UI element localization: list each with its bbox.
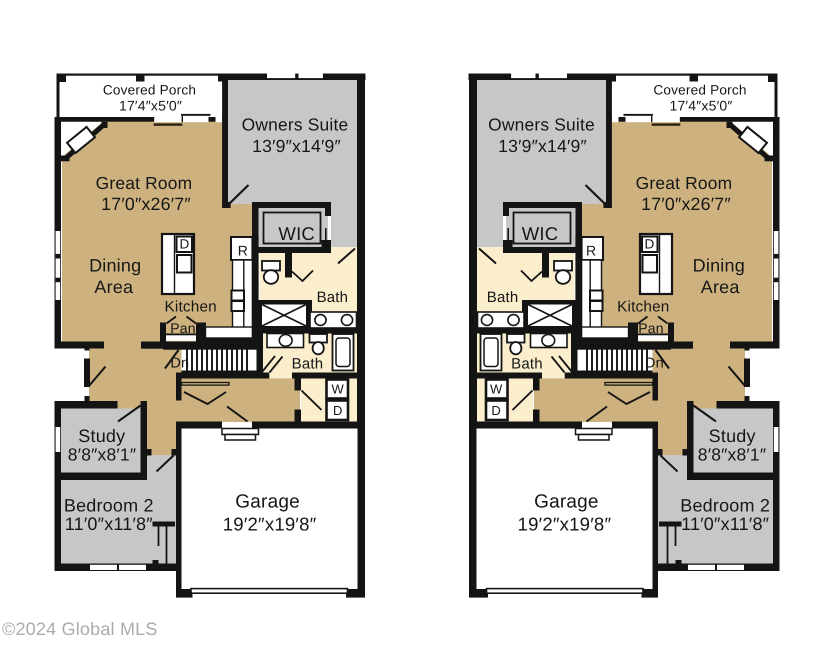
svg-text:Dn: Dn <box>170 355 189 371</box>
svg-text:Area: Area <box>701 277 741 297</box>
svg-text:11′0″x11′8″: 11′0″x11′8″ <box>681 514 770 534</box>
svg-text:19′2″x19′8″: 19′2″x19′8″ <box>223 513 317 534</box>
svg-text:19′2″x19′8″: 19′2″x19′8″ <box>518 513 612 534</box>
svg-text:R: R <box>586 243 596 259</box>
svg-text:Bedroom 2: Bedroom 2 <box>680 495 770 515</box>
svg-text:W: W <box>332 382 345 397</box>
svg-text:Dn: Dn <box>645 355 664 371</box>
svg-text:Covered Porch: Covered Porch <box>103 82 196 97</box>
svg-text:©2024 Global MLS: ©2024 Global MLS <box>2 619 158 639</box>
svg-text:17′0″x26′7″: 17′0″x26′7″ <box>641 194 731 214</box>
svg-text:WIC: WIC <box>522 223 559 244</box>
svg-text:D: D <box>180 237 190 252</box>
svg-text:WIC: WIC <box>278 223 315 244</box>
svg-text:13′9″x14′9″: 13′9″x14′9″ <box>498 136 587 156</box>
svg-text:W: W <box>490 382 503 397</box>
svg-text:Kitchen: Kitchen <box>617 298 669 315</box>
svg-text:Great Room: Great Room <box>96 173 193 193</box>
svg-text:Owners Suite: Owners Suite <box>488 115 595 135</box>
svg-text:Area: Area <box>94 277 134 297</box>
svg-text:Covered Porch: Covered Porch <box>653 82 746 97</box>
svg-text:Dining: Dining <box>89 255 141 275</box>
svg-text:13′9″x14′9″: 13′9″x14′9″ <box>252 136 341 156</box>
svg-text:Bedroom 2: Bedroom 2 <box>64 495 154 515</box>
svg-text:Study: Study <box>78 426 125 446</box>
svg-text:17′4″x5′0″: 17′4″x5′0″ <box>119 97 182 113</box>
svg-text:Pan: Pan <box>170 320 196 336</box>
svg-text:11′0″x11′8″: 11′0″x11′8″ <box>65 514 154 534</box>
svg-text:Kitchen: Kitchen <box>164 298 216 315</box>
svg-text:Bath: Bath <box>511 356 543 373</box>
svg-text:D: D <box>333 403 343 418</box>
svg-text:Owners Suite: Owners Suite <box>242 115 349 135</box>
svg-text:8′8″x8′1″: 8′8″x8′1″ <box>698 444 766 464</box>
svg-text:D: D <box>645 237 655 252</box>
svg-text:Bath: Bath <box>317 289 349 306</box>
svg-text:Study: Study <box>709 426 756 446</box>
svg-text:D: D <box>491 403 501 418</box>
svg-text:8′8″x8′1″: 8′8″x8′1″ <box>68 444 136 464</box>
svg-text:Great Room: Great Room <box>636 173 733 193</box>
svg-text:Garage: Garage <box>534 492 599 513</box>
svg-text:17′0″x26′7″: 17′0″x26′7″ <box>101 194 191 214</box>
svg-text:R: R <box>238 243 248 259</box>
svg-text:Garage: Garage <box>235 492 300 513</box>
svg-text:Pan: Pan <box>638 320 664 336</box>
svg-text:Dining: Dining <box>693 255 745 275</box>
svg-text:Bath: Bath <box>292 356 324 373</box>
svg-text:Bath: Bath <box>487 289 519 306</box>
svg-text:17′4″x5′0″: 17′4″x5′0″ <box>669 97 732 113</box>
